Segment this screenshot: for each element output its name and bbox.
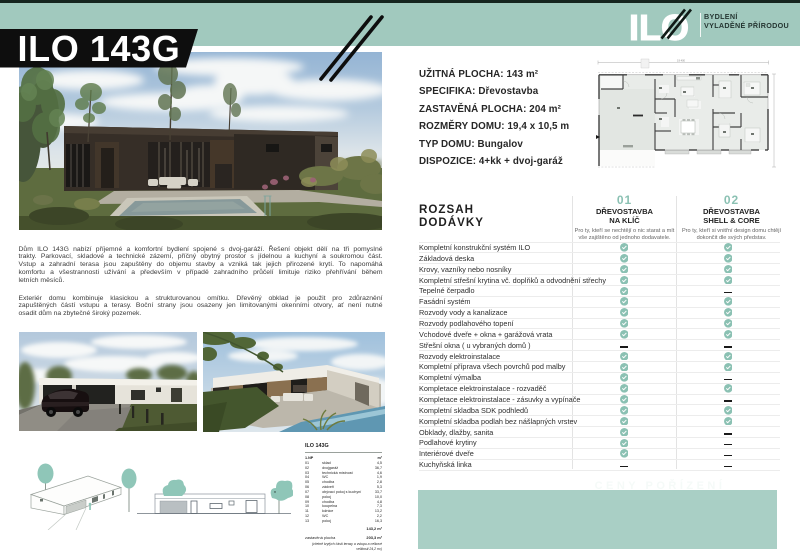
svg-text:19 400: 19 400 <box>677 58 685 62</box>
